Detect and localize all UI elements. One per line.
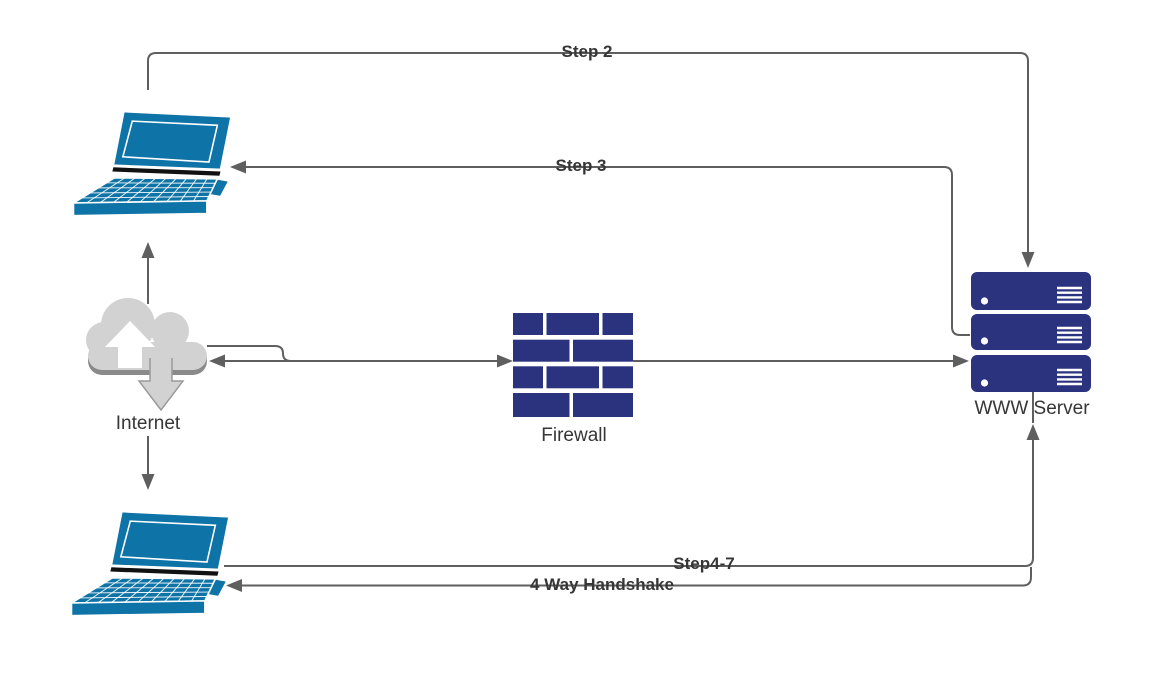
edge-internet-to-laptop-bottom <box>142 436 155 490</box>
edge-step4-7 <box>224 392 1040 566</box>
arrowhead-up-icon <box>1027 424 1040 440</box>
server-led <box>981 297 988 304</box>
edge-internet-to-laptop-top <box>142 242 155 304</box>
server-led <box>981 379 988 386</box>
arrowhead-right-icon <box>953 355 969 368</box>
server-led <box>981 337 988 344</box>
node-label-www-server: WWW Server <box>974 398 1089 420</box>
server-stack-icon <box>971 272 1091 392</box>
edge-step3 <box>230 161 970 336</box>
cloud-upload-download-icon <box>86 298 207 410</box>
arrowhead-down-icon <box>1022 252 1035 268</box>
arrowhead-left-icon <box>230 161 246 174</box>
node-label-internet: Internet <box>116 413 180 435</box>
arrowhead-up-icon <box>142 242 155 258</box>
edge-label-4-way-handshake: 4 Way Handshake <box>530 575 674 595</box>
arrowhead-right-icon <box>497 355 513 368</box>
edge-internet-to-firewall <box>207 346 513 368</box>
laptop-icon <box>72 512 230 616</box>
edge-label-step2: Step 2 <box>561 42 612 62</box>
brick-wall-icon <box>513 313 633 417</box>
edge-label-step4-7: Step4-7 <box>673 554 734 574</box>
edge-label-step3: Step 3 <box>555 156 606 176</box>
edge-firewall-to-server <box>633 355 969 368</box>
arrowhead-left-icon <box>226 579 242 592</box>
arrowhead-down-icon <box>142 474 155 490</box>
arrowhead-left-icon <box>209 355 225 368</box>
laptop-icon <box>74 112 232 216</box>
node-label-firewall: Firewall <box>541 425 606 447</box>
network-diagram: Step 2 Step 3 Step4-7 4 Way Handshake In… <box>0 0 1163 695</box>
